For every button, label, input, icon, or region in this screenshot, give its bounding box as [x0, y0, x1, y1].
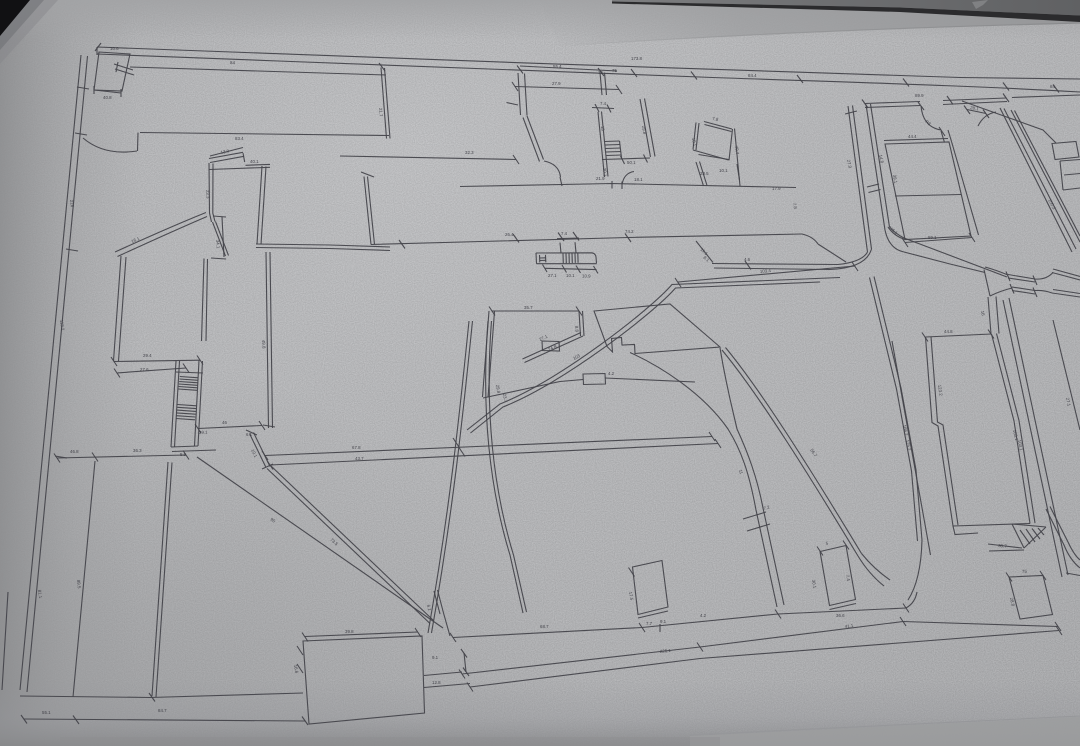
svg-text:35.7: 35.7 [524, 305, 533, 310]
svg-text:8.8: 8.8 [574, 326, 580, 333]
svg-text:36.3: 36.3 [133, 448, 142, 453]
svg-text:39.8: 39.8 [345, 629, 354, 634]
svg-text:30.7: 30.7 [998, 543, 1008, 549]
svg-text:10.1: 10.1 [566, 273, 575, 278]
svg-text:49.8: 49.8 [261, 340, 267, 349]
svg-text:27.6: 27.6 [140, 367, 149, 372]
svg-text:21.7: 21.7 [378, 108, 384, 118]
svg-text:89.5: 89.5 [76, 580, 82, 590]
svg-text:89.9: 89.9 [915, 93, 924, 98]
svg-text:21.9: 21.9 [596, 176, 605, 181]
svg-text:43.7: 43.7 [355, 456, 364, 461]
svg-text:10.9: 10.9 [582, 274, 591, 279]
svg-text:23.5: 23.5 [700, 171, 709, 176]
svg-text:4.2: 4.2 [700, 613, 707, 618]
svg-text:5.9: 5.9 [180, 452, 187, 457]
svg-text:29.4: 29.4 [143, 353, 152, 358]
svg-text:7.4: 7.4 [561, 231, 568, 236]
svg-text:23.3: 23.3 [205, 190, 211, 199]
svg-text:75: 75 [1022, 569, 1028, 574]
svg-text:39.1: 39.1 [199, 430, 208, 435]
svg-text:20.1: 20.1 [602, 168, 608, 178]
svg-text:44.4: 44.4 [908, 134, 917, 139]
svg-text:44.8: 44.8 [944, 329, 953, 334]
svg-text:12.8: 12.8 [432, 680, 441, 685]
svg-text:40.1: 40.1 [250, 159, 259, 164]
svg-text:27.9: 27.9 [552, 81, 561, 86]
svg-text:17.9: 17.9 [772, 186, 781, 191]
svg-text:34.1: 34.1 [215, 240, 221, 250]
svg-text:36.6: 36.6 [836, 613, 845, 618]
svg-text:67.8: 67.8 [352, 445, 361, 450]
svg-text:18.1: 18.1 [634, 177, 643, 182]
svg-text:74.2: 74.2 [625, 229, 634, 234]
svg-text:7.7: 7.7 [646, 621, 653, 626]
svg-text:83.4: 83.4 [235, 136, 244, 141]
svg-text:55.1: 55.1 [42, 710, 51, 715]
svg-text:75: 75 [598, 70, 603, 75]
svg-text:40.8: 40.8 [103, 95, 112, 100]
svg-text:84: 84 [1050, 84, 1055, 89]
svg-text:26.4: 26.4 [505, 232, 514, 237]
svg-text:84: 84 [230, 60, 236, 65]
svg-text:6.1: 6.1 [246, 432, 253, 437]
svg-text:84.4: 84.4 [748, 73, 757, 78]
svg-text:7.4: 7.4 [600, 101, 607, 106]
svg-text:32.3: 32.3 [465, 150, 474, 155]
svg-text:46: 46 [222, 420, 227, 425]
svg-text:46.8: 46.8 [70, 449, 79, 454]
svg-text:84.7: 84.7 [158, 708, 167, 713]
svg-text:4.2: 4.2 [608, 371, 615, 376]
svg-text:173.8: 173.8 [631, 56, 643, 61]
svg-text:50.1: 50.1 [627, 160, 636, 165]
svg-text:68.7: 68.7 [540, 624, 549, 629]
svg-text:9.1: 9.1 [660, 619, 667, 624]
svg-text:10.6: 10.6 [110, 46, 119, 51]
svg-text:10.1: 10.1 [719, 168, 728, 173]
svg-text:9.1: 9.1 [432, 655, 439, 660]
svg-text:27.1: 27.1 [548, 273, 557, 278]
svg-text:4.6: 4.6 [744, 257, 751, 262]
svg-text:59.1: 59.1 [928, 235, 937, 240]
